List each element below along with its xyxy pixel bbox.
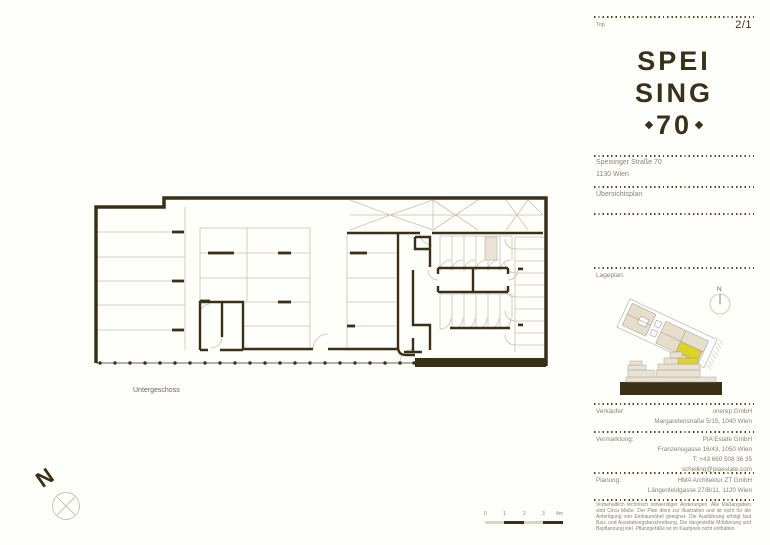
scale-label-4m: 4m (556, 511, 563, 517)
top-label: Top (596, 22, 605, 28)
diamond-icon (645, 121, 653, 129)
siteplan-north-label: N (717, 286, 722, 293)
contact-line: Franzensgasse 16/43, 1050 Wien (596, 445, 752, 455)
plan-walls (96, 198, 546, 366)
project-address: Speisinger Straße 70 (596, 159, 662, 166)
logo-line-2: SING (594, 77, 754, 109)
info-sidebar: Top 2/1 SPEI SING 70 Speisinger Straße 7… (594, 0, 754, 545)
compass-circle (53, 493, 80, 520)
scale-segment (504, 521, 524, 524)
north-arrow: N (30, 458, 90, 528)
scale-label-2: 2 (523, 511, 526, 517)
siteplan-drawing: N (612, 281, 758, 401)
divider (594, 155, 754, 157)
scale-segment (485, 521, 505, 524)
scale-bar: 0 1 2 3 4m (480, 511, 570, 529)
legal-disclaimer: Vorbehaltlich technisch notwendiger Ände… (596, 503, 751, 533)
logo-line-1: SPEI (594, 45, 754, 77)
stall-ticks (172, 231, 523, 332)
contact-seller: Verkäufer: onerep GmbH Margaretenstraße … (596, 407, 752, 427)
contact-label: Vermarktung: (596, 435, 633, 445)
diamond-icon (695, 121, 703, 129)
contact-label: Verkäufer: (596, 407, 625, 417)
divider (594, 472, 754, 474)
contact-line: Margaretenstraße 5/15, 1040 Wien (596, 417, 752, 427)
highlighted-cell (485, 237, 497, 260)
north-label: N (31, 463, 58, 493)
contact-line: T: +43 660 508 36 35 (596, 455, 752, 465)
plan-sheet: Untergeschoss N 0 1 2 3 4m Top 2/1 SPEI … (0, 0, 770, 545)
contact-marketing: Vermarktung: PIA Estate GmbH Franzensgas… (596, 435, 752, 475)
siteplan-compass: N (710, 286, 730, 314)
page-number: 2/1 (735, 19, 752, 31)
scale-label-0: 0 (484, 511, 487, 517)
section-highlight (678, 358, 698, 364)
siteplan-label: Lageplan: (596, 272, 625, 279)
divider (594, 186, 754, 188)
project-city: 1130 Wien (596, 171, 629, 178)
contact-architect: Planung: HMA Architektur ZT GmbH Längenf… (596, 476, 752, 496)
floor-label: Untergeschoss (133, 387, 180, 394)
plan-type-label: Übersichtsplan (596, 191, 642, 198)
plan-light-lines (96, 200, 544, 363)
scale-segment (543, 521, 563, 524)
scale-segment (524, 521, 544, 524)
project-logo: SPEI SING 70 (594, 45, 754, 141)
contact-line: Längenfeldgasse 27/B/11, 1120 Wien (596, 486, 752, 496)
divider (594, 16, 754, 18)
scale-label-1: 1 (503, 511, 506, 517)
bottom-wall-band (415, 358, 546, 367)
scale-label-3: 3 (542, 511, 545, 517)
divider (594, 403, 754, 405)
divider (594, 499, 754, 501)
contact-label: Planung: (596, 476, 621, 486)
floor-plan-drawing (88, 192, 560, 378)
divider (594, 267, 754, 269)
logo-number: 70 (656, 109, 692, 141)
divider (594, 213, 754, 215)
divider (594, 431, 754, 433)
